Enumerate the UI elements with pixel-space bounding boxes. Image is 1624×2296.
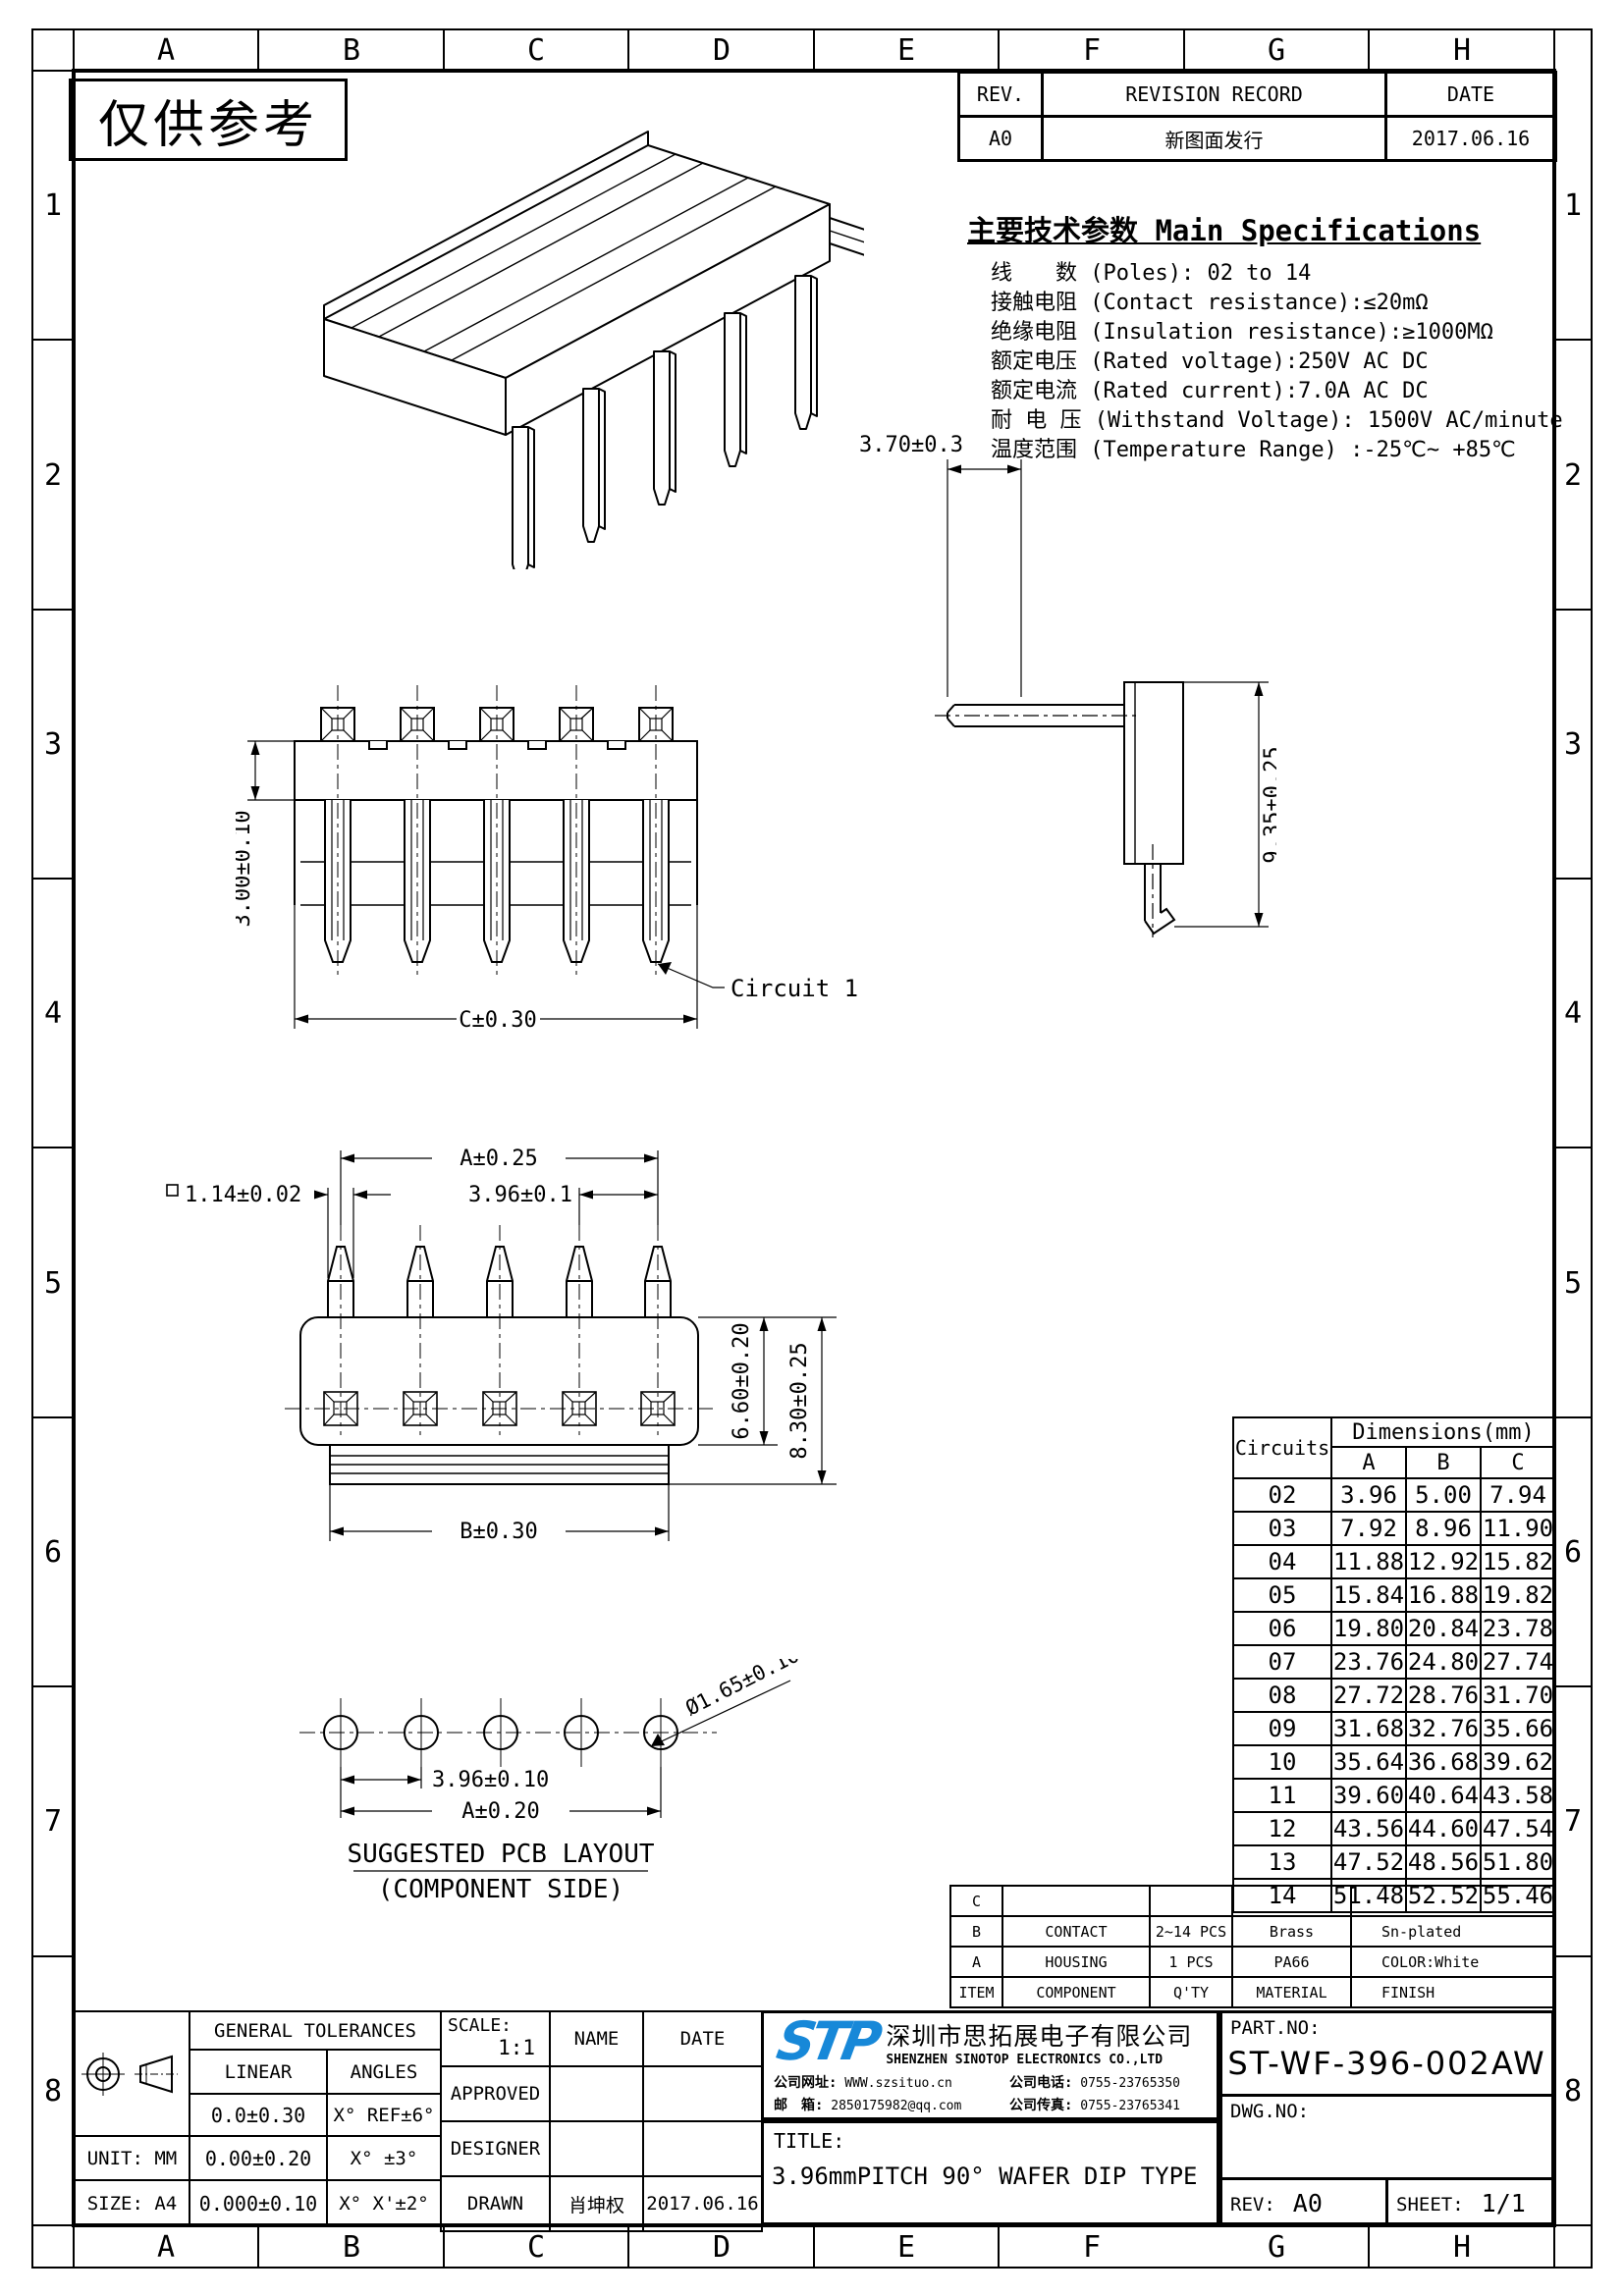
- zone-number: 7: [1564, 1804, 1582, 1839]
- zone-letter: F: [1083, 2230, 1101, 2265]
- zone-number: 1: [44, 188, 62, 223]
- sheet-cell: SHEET: 1/1: [1385, 2180, 1551, 2225]
- dim-label: A±0.25: [460, 1147, 537, 1171]
- table-cell: 3.96: [1331, 1478, 1406, 1512]
- unit-label: UNIT: MM: [75, 2136, 189, 2180]
- dim-label: 1.14±0.02: [185, 1183, 301, 1207]
- table-row: APPROVED: [441, 2066, 762, 2121]
- zone-number: 3: [1564, 727, 1582, 762]
- col-c-header: C: [1481, 1447, 1555, 1478]
- dim-label: B±0.30: [460, 1520, 537, 1544]
- table-cell: [1351, 1886, 1555, 1916]
- rev-label: REV:: [1222, 2190, 1275, 2216]
- zone-number: 4: [1564, 996, 1582, 1031]
- table-cell: 7.94: [1481, 1478, 1555, 1512]
- zone-number: 6: [1564, 1535, 1582, 1570]
- date-value: 2017.06.16: [1386, 117, 1556, 161]
- angle-tol-2: X° ±3°: [327, 2136, 441, 2180]
- zone-number: 5: [1564, 1266, 1582, 1301]
- table-cell: 31.70: [1481, 1679, 1555, 1712]
- table-row: 0619.8020.8423.78: [1233, 1612, 1555, 1645]
- table-row: 1139.6040.6443.58: [1233, 1779, 1555, 1812]
- zone-letter: E: [897, 2230, 915, 2265]
- dim-label: 3.00±0.10: [236, 810, 255, 927]
- table-row: 0515.8416.8819.82: [1233, 1578, 1555, 1612]
- zone-letter: F: [1083, 33, 1101, 68]
- table-row: SCALE: 1:1 NAME DATE: [441, 2011, 762, 2066]
- dim-label: 8.30±0.25: [787, 1342, 812, 1459]
- table-cell: 11: [1233, 1779, 1331, 1812]
- table-cell: 03: [1233, 1512, 1331, 1545]
- company-phone: 公司电话: 0755-23765350: [1009, 2072, 1213, 2095]
- table-cell: 36.68: [1406, 1745, 1481, 1779]
- table-cell: 32.76: [1406, 1712, 1481, 1745]
- table-row: 037.928.9611.90: [1233, 1512, 1555, 1545]
- front-view: 3.00±0.10 C±0.30 Circuit 1: [236, 677, 1080, 1050]
- table-row: 1243.5644.6047.54: [1233, 1812, 1555, 1845]
- phone-value: 0755-23765350: [1080, 2076, 1180, 2091]
- table-cell: MATERIAL: [1232, 1977, 1351, 2007]
- table-cell: 39.62: [1481, 1745, 1555, 1779]
- zone-letter: B: [343, 2230, 360, 2265]
- dim-label: C±0.30: [459, 1008, 536, 1033]
- square-symbol: [167, 1185, 178, 1196]
- dim-label: Ø1.65±0.10: [681, 1659, 803, 1720]
- table-cell: 1 PCS: [1150, 1947, 1232, 1977]
- table-row: 0827.7228.7631.70: [1233, 1679, 1555, 1712]
- table-cell: Sn-plated: [1351, 1916, 1555, 1947]
- company-name-cn: 深圳市思拓展电子有限公司: [886, 2017, 1217, 2053]
- table-cell: 23.78: [1481, 1612, 1555, 1645]
- component-table: CBCONTACT2~14 PCSBrassSn-platedAHOUSING1…: [949, 1885, 1556, 2008]
- approved-date: [643, 2066, 762, 2121]
- table-row: 0931.6832.7635.66: [1233, 1712, 1555, 1745]
- company-name-en: SHENZHEN SINOTOP ELECTRONICS CO.,LTD: [886, 2053, 1217, 2067]
- table-cell: 35.64: [1331, 1745, 1406, 1779]
- zone-letter: C: [527, 2230, 545, 2265]
- circuits-header: Circuits: [1233, 1417, 1331, 1478]
- part-no-value: ST-WF-396-002AW: [1222, 2039, 1551, 2082]
- dim-label: 6.60±0.20: [730, 1322, 754, 1439]
- zone-letter: D: [713, 33, 731, 68]
- zone-letter: H: [1453, 33, 1471, 68]
- table-cell: 8.96: [1406, 1512, 1481, 1545]
- zone-number: 7: [44, 1804, 62, 1839]
- name-header: NAME: [550, 2011, 643, 2066]
- table-cell: 47.54: [1481, 1812, 1555, 1845]
- date-header: DATE: [643, 2011, 762, 2066]
- zone-letter: B: [343, 33, 360, 68]
- zone-letter: D: [713, 2230, 731, 2265]
- table-row: AHOUSING1 PCSPA66COLOR:White: [950, 1947, 1555, 1977]
- table-cell: 27.72: [1331, 1679, 1406, 1712]
- bottom-view: A±0.25 3.96±0.1 1.14±0.02 6.60±0.20 8.30…: [137, 1119, 1041, 1590]
- table-row: DESIGNER: [441, 2121, 762, 2176]
- part-no-label: PART.NO:: [1222, 2013, 1551, 2039]
- table-cell: Brass: [1232, 1916, 1351, 1947]
- table-cell: 10: [1233, 1745, 1331, 1779]
- table-cell: 35.66: [1481, 1712, 1555, 1745]
- pcb-caption2: (COMPONENT SIDE): [378, 1875, 623, 1904]
- table-row: UNIT: MM 0.00±0.20 X° ±3°: [75, 2136, 441, 2180]
- drawing-title: 3.96mmPITCH 90° WAFER DIP TYPE: [764, 2153, 1217, 2190]
- table-row: GENERAL TOLERANCES: [75, 2011, 441, 2050]
- angle-tol-3: X° X'±2°: [327, 2180, 441, 2226]
- table-cell: 40.64: [1406, 1779, 1481, 1812]
- website-value: WWW.szsituo.cn: [844, 2076, 952, 2091]
- projection-symbol-cell: [75, 2011, 189, 2136]
- table-cell: COLOR:White: [1351, 1947, 1555, 1977]
- table-cell: COMPONENT: [1002, 1977, 1150, 2007]
- zone-number: 2: [1564, 458, 1582, 493]
- part-block: PART.NO: ST-WF-396-002AW DWG.NO: REV: A0…: [1219, 2010, 1554, 2225]
- zone-number: 1: [1564, 188, 1582, 223]
- zone-letter: A: [157, 33, 175, 68]
- table-row: 1035.6436.6839.62: [1233, 1745, 1555, 1779]
- dim-label: A±0.20: [461, 1799, 539, 1824]
- linear-tol-1: 0.0±0.30: [189, 2094, 327, 2136]
- dim-label: 3.96±0.1: [468, 1183, 572, 1207]
- col-a-header: A: [1331, 1447, 1406, 1478]
- tolerances-title: GENERAL TOLERANCES: [189, 2011, 441, 2050]
- spec-line: 接触电阻 (Contact resistance):≤20mΩ: [967, 289, 1546, 318]
- zone-number: 6: [44, 1535, 62, 1570]
- rev-header: REV.: [959, 73, 1043, 117]
- fax-label: 公司传真:: [1009, 2098, 1072, 2113]
- table-cell: 16.88: [1406, 1578, 1481, 1612]
- table-row: DRAWN 肖坤权 2017.06.16: [441, 2176, 762, 2231]
- table-cell: 51.80: [1481, 1845, 1555, 1879]
- company-email: 邮 箱: 2850175982@qq.com: [774, 2095, 1009, 2117]
- zone-number: 5: [44, 1266, 62, 1301]
- record-header: REVISION RECORD: [1043, 73, 1386, 117]
- table-cell: PA66: [1232, 1947, 1351, 1977]
- table-cell: [1150, 1886, 1232, 1916]
- zone-letter: G: [1268, 2230, 1285, 2265]
- table-row: SIZE: A4 0.000±0.10 X° X'±2°: [75, 2180, 441, 2226]
- table-cell: 2~14 PCS: [1150, 1916, 1232, 1947]
- table-cell: 05: [1233, 1578, 1331, 1612]
- drawn-date: 2017.06.16: [643, 2176, 762, 2231]
- email-label: 邮 箱:: [774, 2098, 823, 2113]
- rev-value: A0: [1293, 2189, 1323, 2217]
- table-row: A0 新图面发行 2017.06.16: [959, 117, 1556, 161]
- sheet-value: 1/1: [1482, 2189, 1526, 2217]
- zone-number: 4: [44, 996, 62, 1031]
- table-cell: 44.60: [1406, 1812, 1481, 1845]
- table-cell: Q'TY: [1150, 1977, 1232, 2007]
- table-cell: 12: [1233, 1812, 1331, 1845]
- dim-label: 3.96±0.10: [432, 1768, 549, 1792]
- zone-number: 2: [44, 458, 62, 493]
- table-cell: [1232, 1886, 1351, 1916]
- rev-value: A0: [959, 117, 1043, 161]
- approved-label: APPROVED: [441, 2066, 550, 2121]
- zone-number: 8: [1564, 2074, 1582, 2109]
- table-cell: ITEM: [950, 1977, 1002, 2007]
- table-cell: 31.68: [1331, 1712, 1406, 1745]
- company-fax: 公司传真: 0755-23765341: [1009, 2095, 1213, 2117]
- dim-label: 9.35±0.25: [1261, 746, 1276, 863]
- company-block: STP 深圳市思拓展电子有限公司 SHENZHEN SINOTOP ELECTR…: [761, 2010, 1219, 2120]
- table-row: REV. REVISION RECORD DATE: [959, 73, 1556, 117]
- table-cell: 13: [1233, 1845, 1331, 1879]
- tolerances-block: GENERAL TOLERANCES LINEAR ANGLES 0.0±0.3…: [74, 2010, 442, 2227]
- specs-title: 主要技术参数 Main Specifications: [967, 208, 1546, 249]
- rev-cell: REV: A0: [1222, 2180, 1385, 2225]
- table-cell: 47.52: [1331, 1845, 1406, 1879]
- zone-letter: A: [157, 2230, 175, 2265]
- spec-line: 额定电压 (Rated voltage):250V AC DC: [967, 347, 1546, 377]
- table-cell: B: [950, 1916, 1002, 1947]
- approval-block: SCALE: 1:1 NAME DATE APPROVED DESIGNER D…: [440, 2010, 763, 2232]
- record-value: 新图面发行: [1043, 117, 1386, 161]
- scale-cell: SCALE: 1:1: [441, 2011, 550, 2066]
- table-cell: 12.92: [1406, 1545, 1481, 1578]
- drawing-sheet: A B C D E F G H A B C D E F G H 1 2 3 4 …: [0, 0, 1624, 2296]
- approved-name: [550, 2066, 643, 2121]
- pcb-layout-view: 3.96±0.10 A±0.20 Ø1.65±0.10 SUGGESTED PC…: [255, 1659, 943, 1993]
- table-cell: 39.60: [1331, 1779, 1406, 1812]
- table-cell: 20.84: [1406, 1612, 1481, 1645]
- isometric-view: [255, 108, 864, 569]
- table-cell: 15.84: [1331, 1578, 1406, 1612]
- scale-label: SCALE:: [442, 2012, 512, 2036]
- table-cell: 43.58: [1481, 1779, 1555, 1812]
- table-cell: 07: [1233, 1645, 1331, 1679]
- company-logo: STP: [759, 2015, 891, 2068]
- table-cell: 11.90: [1481, 1512, 1555, 1545]
- table-cell: 5.00: [1406, 1478, 1481, 1512]
- pcb-caption: SUGGESTED PCB LAYOUT: [347, 1840, 654, 1869]
- spec-line: 额定电流 (Rated current):7.0A AC DC: [967, 377, 1546, 406]
- zone-letter: E: [897, 33, 915, 68]
- designer-label: DESIGNER: [441, 2121, 550, 2176]
- table-row: 0723.7624.8027.74: [1233, 1645, 1555, 1679]
- table-cell: 15.82: [1481, 1545, 1555, 1578]
- table-cell: FINISH: [1351, 1977, 1555, 2007]
- table-cell: 09: [1233, 1712, 1331, 1745]
- fax-value: 0755-23765341: [1080, 2099, 1180, 2113]
- angle-tol-1: X° REF±6°: [327, 2094, 441, 2136]
- drawn-name: 肖坤权: [550, 2176, 643, 2231]
- table-cell: 28.76: [1406, 1679, 1481, 1712]
- date-header: DATE: [1386, 73, 1556, 117]
- table-cell: 11.88: [1331, 1545, 1406, 1578]
- table-cell: 7.92: [1331, 1512, 1406, 1545]
- spec-line: 线 数 (Poles): 02 to 14: [967, 259, 1546, 289]
- table-cell: CONTACT: [1002, 1916, 1150, 1947]
- linear-header: LINEAR: [189, 2050, 327, 2094]
- table-cell: 43.56: [1331, 1812, 1406, 1845]
- company-website: 公司网址: WWW.szsituo.cn: [774, 2072, 1009, 2095]
- table-cell: 24.80: [1406, 1645, 1481, 1679]
- drawn-label: DRAWN: [441, 2176, 550, 2231]
- table-cell: 02: [1233, 1478, 1331, 1512]
- zone-number: 8: [44, 2074, 62, 2109]
- table-row: C: [950, 1886, 1555, 1916]
- zone-number: 3: [44, 727, 62, 762]
- linear-tol-3: 0.000±0.10: [189, 2180, 327, 2226]
- circuit1-label: Circuit 1: [731, 975, 858, 1002]
- dimensions-header: Dimensions(mm): [1331, 1417, 1555, 1447]
- angles-header: ANGLES: [327, 2050, 441, 2094]
- linear-tol-2: 0.00±0.20: [189, 2136, 327, 2180]
- phone-label: 公司电话:: [1009, 2075, 1072, 2091]
- table-cell: 19.82: [1481, 1578, 1555, 1612]
- third-angle-projection-icon: [76, 2045, 184, 2104]
- table-cell: [1002, 1886, 1150, 1916]
- designer-date: [643, 2121, 762, 2176]
- table-cell: 27.74: [1481, 1645, 1555, 1679]
- table-row: BCONTACT2~14 PCSBrassSn-plated: [950, 1916, 1555, 1947]
- zone-letter: H: [1453, 2230, 1471, 2265]
- zone-letter: G: [1268, 33, 1285, 68]
- title-block: TITLE: 3.96mmPITCH 90° WAFER DIP TYPE: [761, 2120, 1219, 2225]
- table-cell: 06: [1233, 1612, 1331, 1645]
- dim-label: 3.70±0.3: [859, 433, 963, 457]
- table-row: 1347.5248.5651.80: [1233, 1845, 1555, 1879]
- table-cell: 48.56: [1406, 1845, 1481, 1879]
- table-cell: 19.80: [1331, 1612, 1406, 1645]
- table-row: Circuits Dimensions(mm): [1233, 1417, 1555, 1447]
- zone-letter: C: [527, 33, 545, 68]
- dimensions-table: Circuits Dimensions(mm) A B C 023.965.00…: [1232, 1416, 1556, 1913]
- sheet-label: SHEET:: [1388, 2190, 1464, 2216]
- website-label: 公司网址:: [774, 2075, 837, 2091]
- table-row: 0411.8812.9215.82: [1233, 1545, 1555, 1578]
- table-cell: 23.76: [1331, 1645, 1406, 1679]
- revision-table: REV. REVISION RECORD DATE A0 新图面发行 2017.…: [957, 71, 1557, 162]
- table-row: 023.965.007.94: [1233, 1478, 1555, 1512]
- designer-name: [550, 2121, 643, 2176]
- table-cell: A: [950, 1947, 1002, 1977]
- dwg-no-label: DWG.NO:: [1222, 2097, 1551, 2122]
- col-b-header: B: [1406, 1447, 1481, 1478]
- email-value: 2850175982@qq.com: [831, 2099, 961, 2113]
- scale-value: 1:1: [498, 2036, 549, 2059]
- size-label: SIZE: A4: [75, 2180, 189, 2226]
- spec-line: 绝缘电阻 (Insulation resistance):≥1000MΩ: [967, 318, 1546, 347]
- title-label: TITLE:: [764, 2123, 1217, 2153]
- table-cell: C: [950, 1886, 1002, 1916]
- table-cell: 08: [1233, 1679, 1331, 1712]
- table-row: ITEMCOMPONENTQ'TYMATERIALFINISH: [950, 1977, 1555, 2007]
- table-cell: HOUSING: [1002, 1947, 1150, 1977]
- table-cell: 04: [1233, 1545, 1331, 1578]
